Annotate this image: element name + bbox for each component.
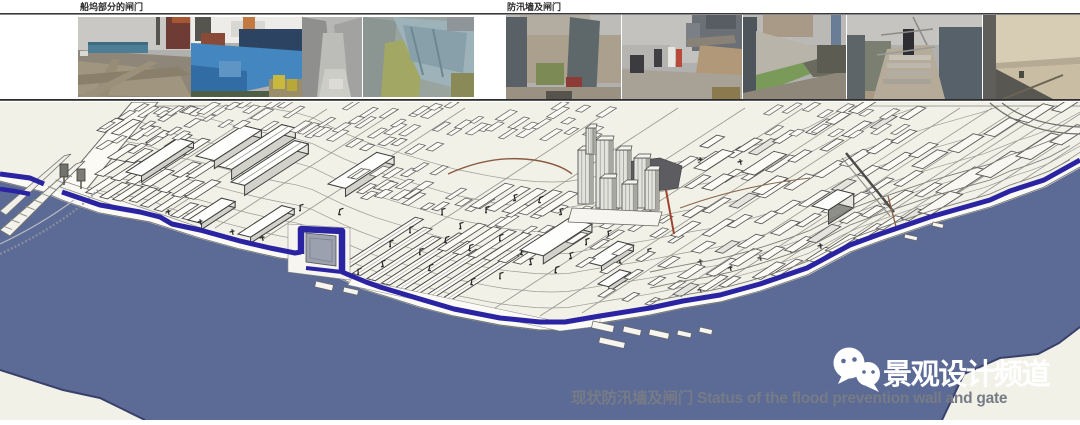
svg-text:景观设计频道: 景观设计频道 bbox=[883, 358, 1051, 391]
svg-text:船坞部分的闸门: 船坞部分的闸门 bbox=[80, 1, 143, 12]
svg-text:防汛墙及闸门: 防汛墙及闸门 bbox=[507, 1, 561, 12]
